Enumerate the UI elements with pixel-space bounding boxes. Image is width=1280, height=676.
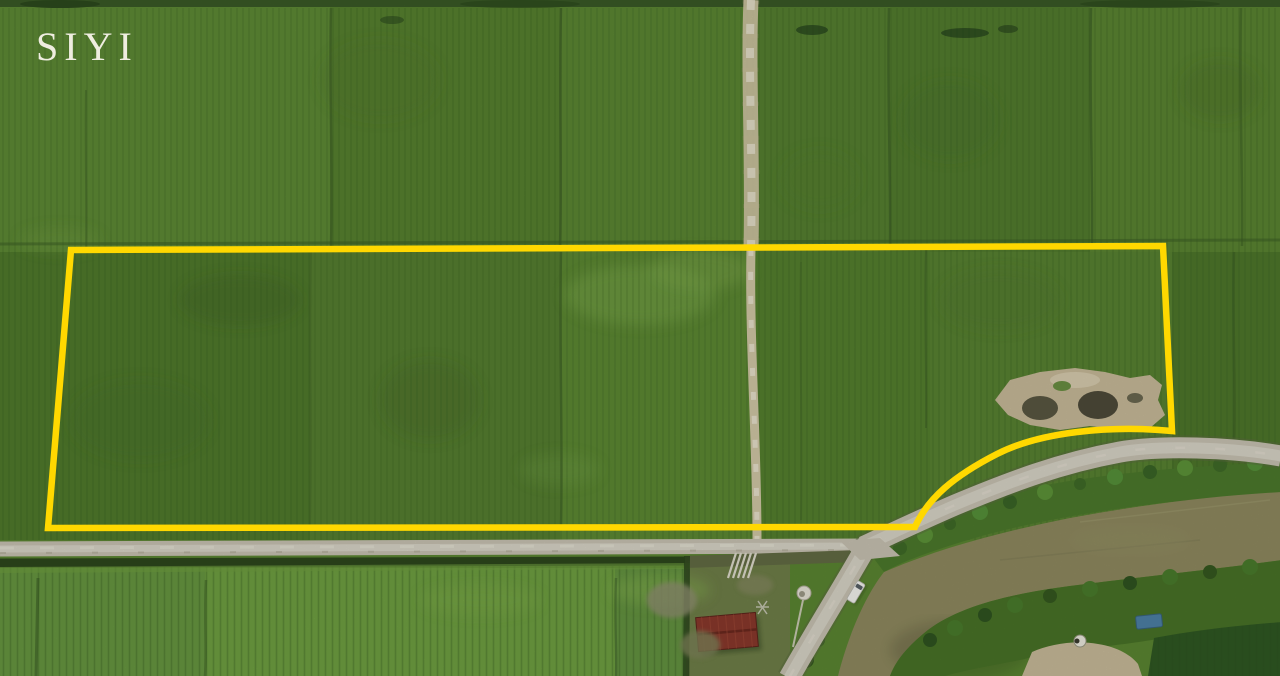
aerial-photo-viewport: SIYI	[0, 0, 1280, 676]
photo-grain	[0, 0, 1280, 676]
aerial-photo: SIYI	[0, 0, 1280, 676]
siyi-watermark: SIYI	[36, 24, 138, 69]
